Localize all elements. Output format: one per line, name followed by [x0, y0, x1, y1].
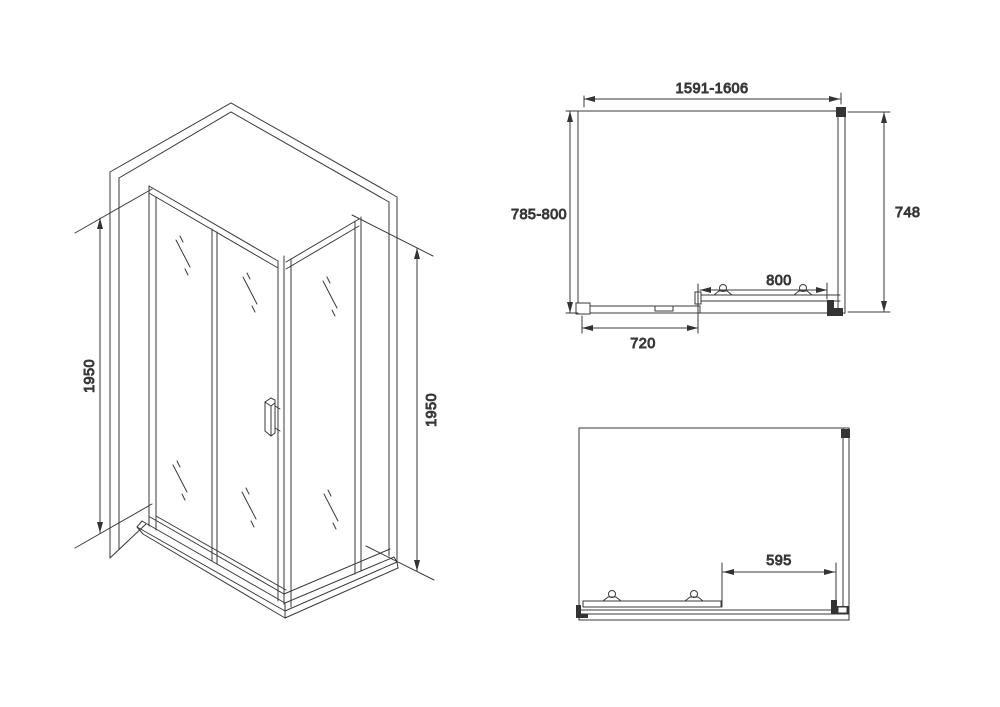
- dim-748: [848, 112, 890, 312]
- wall-bracket: [836, 107, 846, 117]
- dim-panel-720: [582, 316, 698, 333]
- dim-height-right: [352, 215, 434, 580]
- glass-shine-marks: [173, 236, 338, 529]
- wall-bracket: [841, 429, 850, 438]
- technical-drawing: 1950 1950: [0, 0, 1000, 707]
- dim-label-height-right: 1950: [424, 393, 440, 427]
- dim-label-595: 595: [766, 553, 791, 569]
- top-view-sliding-door: [695, 285, 843, 317]
- dim-door-800: [698, 283, 827, 333]
- bottom-track: [579, 610, 849, 620]
- iso-view: 1950 1950: [75, 103, 440, 618]
- shower-tray: [137, 516, 398, 618]
- top-view-outline: [578, 107, 846, 313]
- roller: [603, 591, 621, 602]
- iso-walls: [110, 103, 397, 562]
- bottom-view: 595: [576, 428, 850, 620]
- corner-bracket: [827, 300, 843, 316]
- dim-label-748: 748: [895, 205, 920, 221]
- shower-enclosure-technical-drawing: 1950 1950: [0, 0, 1000, 707]
- dim-label-800: 800: [766, 273, 791, 289]
- dim-label-720: 720: [630, 336, 655, 352]
- dim-label-depth: 785-800: [511, 207, 567, 223]
- roller: [685, 591, 703, 602]
- dim-label-width: 1591-1606: [676, 81, 749, 97]
- top-view-fixed-panel: [576, 303, 700, 314]
- bottom-view-outline: [579, 428, 850, 620]
- dim-label-height-left: 1950: [82, 359, 98, 393]
- top-view: 1591-1606 785-800 748 800 720: [511, 81, 920, 352]
- dim-opening-595: [722, 563, 836, 607]
- dim-depth: [566, 111, 578, 313]
